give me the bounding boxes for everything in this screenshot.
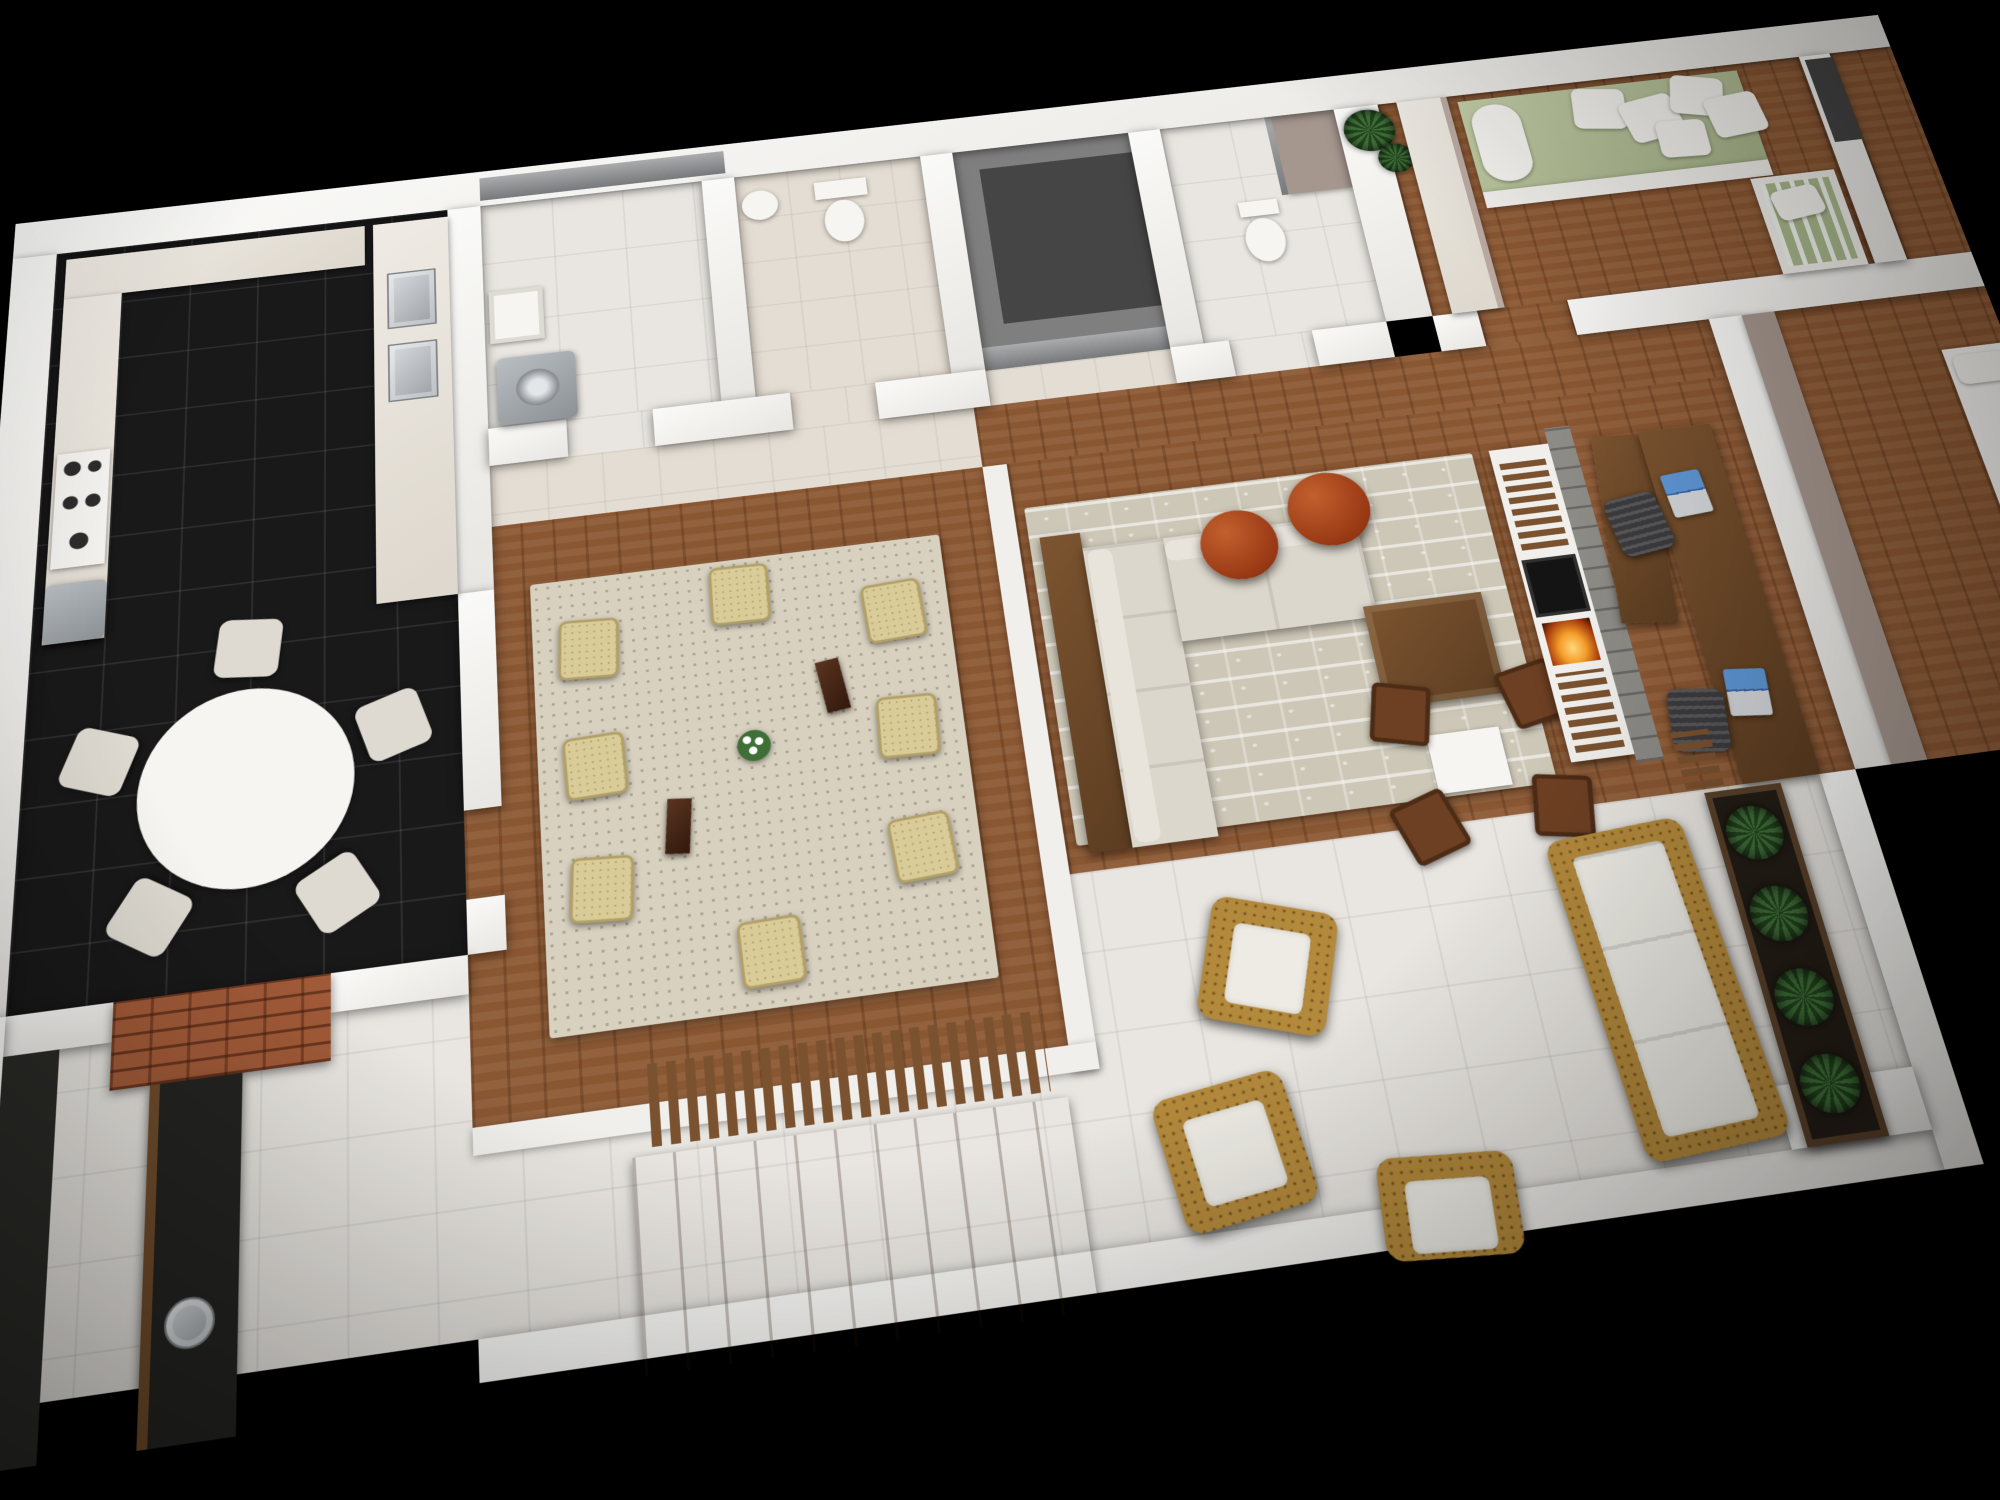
planter-yucca-3 <box>1767 965 1841 1030</box>
living-chair-4 <box>1531 774 1596 838</box>
dining-chair-8 <box>736 913 808 990</box>
utility-sink <box>488 286 544 344</box>
bbq-counter <box>136 1073 242 1451</box>
dining-chair-3 <box>570 855 634 925</box>
apartment-plan <box>0 0 2000 1489</box>
dining-chair-2 <box>562 731 629 802</box>
armchair-2-cushion <box>1181 1099 1289 1208</box>
nursery-front-wall-1 <box>1432 311 1486 352</box>
dining-chair-6 <box>886 809 960 884</box>
breakfast-side-wall-upper <box>458 590 502 811</box>
elevator-interior <box>979 152 1161 324</box>
armchair-1-cushion <box>1223 922 1311 1015</box>
dining-chair-1 <box>558 617 619 681</box>
planter-yucca-4 <box>1793 1050 1868 1117</box>
laptop-2 <box>1722 668 1773 716</box>
dining-chair-5 <box>875 692 941 759</box>
kitchen-sink-2 <box>388 339 439 402</box>
bed-pillow-5 <box>1654 118 1713 158</box>
wicker-armchair-1 <box>1196 894 1340 1038</box>
floor-plan-scene <box>0 0 2000 1500</box>
armchair-3-cushion <box>1404 1176 1500 1255</box>
kitchen-sink-1 <box>387 268 437 329</box>
breakfast-chair-1 <box>213 619 285 679</box>
breakfast-side-wall-lower <box>466 895 506 955</box>
planter-yucca-2 <box>1743 882 1815 944</box>
candle-pillar-1 <box>665 798 692 854</box>
wicker-armchair-3 <box>1374 1150 1527 1263</box>
oven-front <box>42 579 108 646</box>
dining-chair-7 <box>708 563 771 627</box>
service-front-wall-4 <box>1170 340 1236 383</box>
side-table <box>1426 726 1513 794</box>
gas-cooktop <box>50 449 110 570</box>
planter-yucca-1 <box>1720 803 1791 863</box>
dining-chair-4 <box>859 577 928 644</box>
living-chair-1 <box>1370 682 1431 747</box>
